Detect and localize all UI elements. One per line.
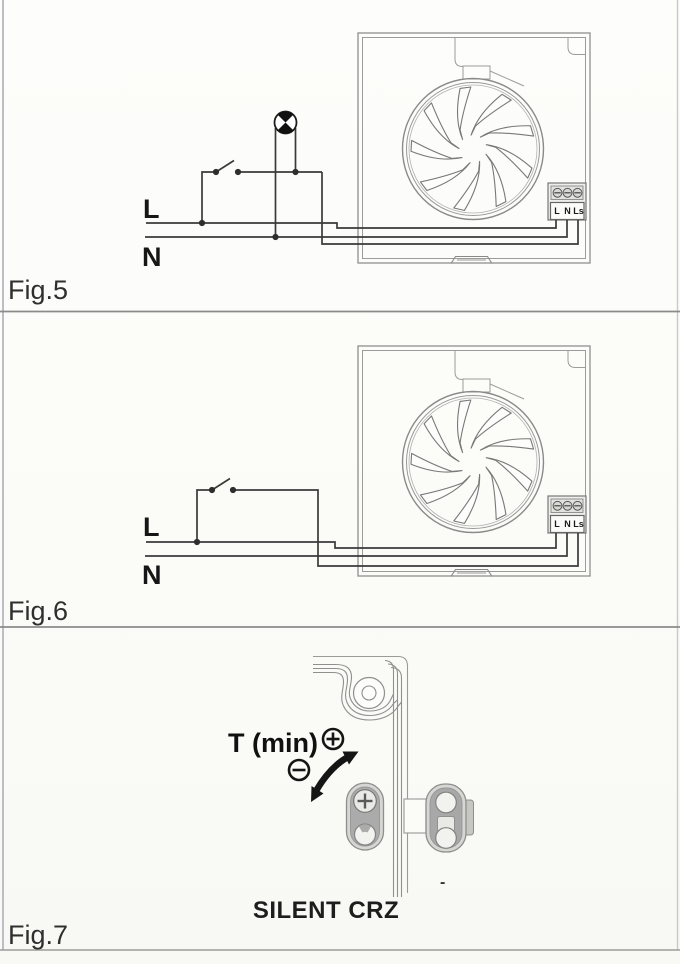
fig6-motor-mount-line	[455, 351, 463, 380]
fig5-screw-terminals	[553, 188, 582, 197]
fig6-neutral-wire	[145, 533, 567, 556]
fig5-terminal-label-l: L	[554, 206, 560, 216]
fig5-switch-feed	[202, 172, 216, 223]
fig6-junction-dots	[194, 487, 236, 545]
fig6-terminal-label-l: L	[554, 519, 560, 529]
fig7-dash-mark: -	[440, 874, 445, 891]
fig5-fan-unit-outline	[358, 33, 590, 264]
plus-icon	[323, 729, 343, 749]
fig6-corner-notch	[568, 351, 586, 368]
fig5-motor-mount	[463, 66, 490, 79]
fig6-terminal-block: L N Ls	[548, 496, 586, 533]
fig6-switch-blade	[212, 479, 230, 491]
fig5-motor-mount-line	[455, 38, 463, 67]
manual-page: L N Ls L N Fig.5	[0, 0, 680, 964]
fig6-terminal-label-n: N	[564, 519, 571, 529]
fig5-neutral-label: N	[142, 242, 162, 272]
fig6-live-label: L	[143, 512, 160, 542]
panel-frame	[0, 0, 680, 950]
fig6-neutral-label: N	[142, 560, 162, 590]
fig7-screw-boss-inner	[362, 686, 376, 700]
fig6-screw-terminals	[553, 501, 582, 510]
fig7-panel: T (min)	[8, 657, 474, 951]
fig6-switch-feed	[197, 490, 212, 542]
fig5-switched-live-wire	[322, 172, 578, 244]
fig6-terminal-label-ls: Ls	[573, 519, 584, 529]
fig7-pot-side-view	[426, 784, 474, 852]
fig6-caption: Fig.6	[8, 596, 68, 626]
fig7-timer-potentiometer	[347, 783, 384, 850]
fig5-live-label: L	[143, 194, 160, 224]
fig7-pot-bracket	[404, 799, 426, 833]
fig5-fan-impeller	[403, 79, 544, 220]
fig5-terminal-label-ls: Ls	[573, 206, 584, 216]
diagram-canvas: L N Ls L N Fig.5	[0, 0, 680, 964]
fig7-timer-label: T (min)	[228, 728, 318, 758]
fig5-panel: L N Ls L N Fig.5	[8, 33, 590, 305]
fig5-lamp-icon	[275, 111, 297, 133]
fig7-caption: Fig.7	[8, 920, 68, 950]
fig6-motor-mount	[463, 379, 490, 392]
fig5-live-wire	[146, 220, 556, 228]
fig5-corner-notch	[568, 38, 586, 55]
minus-icon	[289, 760, 309, 780]
fig6-fan-impeller	[403, 392, 544, 533]
fig6-panel: L N Ls L N Fig.6	[8, 346, 590, 626]
fig7-product-name: SILENT CRZ	[253, 897, 399, 924]
fig5-switch-blade	[216, 161, 234, 173]
fig5-terminal-block: L N Ls	[548, 183, 586, 220]
fig5-caption: Fig.5	[8, 275, 68, 305]
fig5-terminal-label-n: N	[564, 206, 571, 216]
fig6-live-wire	[146, 533, 556, 548]
fig5-junction-dots	[199, 169, 299, 240]
fig5-wiring	[145, 128, 578, 244]
